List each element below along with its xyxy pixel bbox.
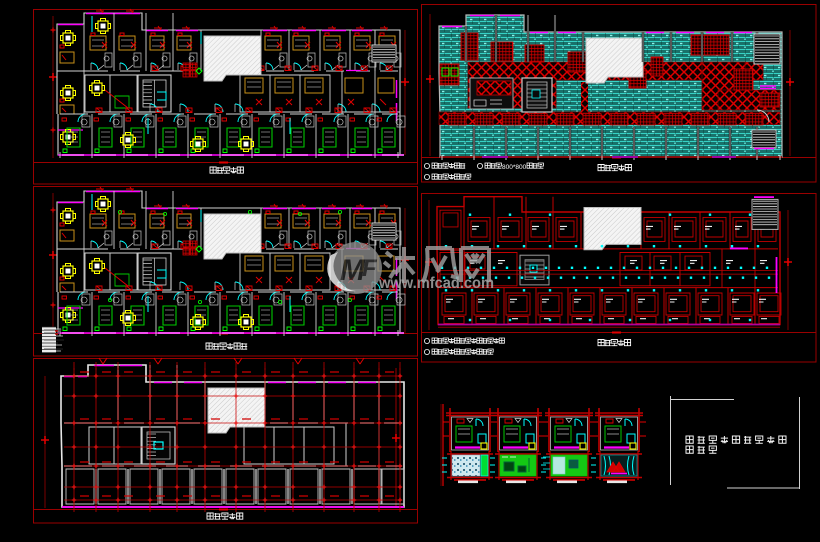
svg-text:800*800: 800*800 [502,164,527,171]
svg-text:www.mfcad.com: www.mfcad.com [378,275,494,292]
svg-text:F: F [362,255,378,282]
